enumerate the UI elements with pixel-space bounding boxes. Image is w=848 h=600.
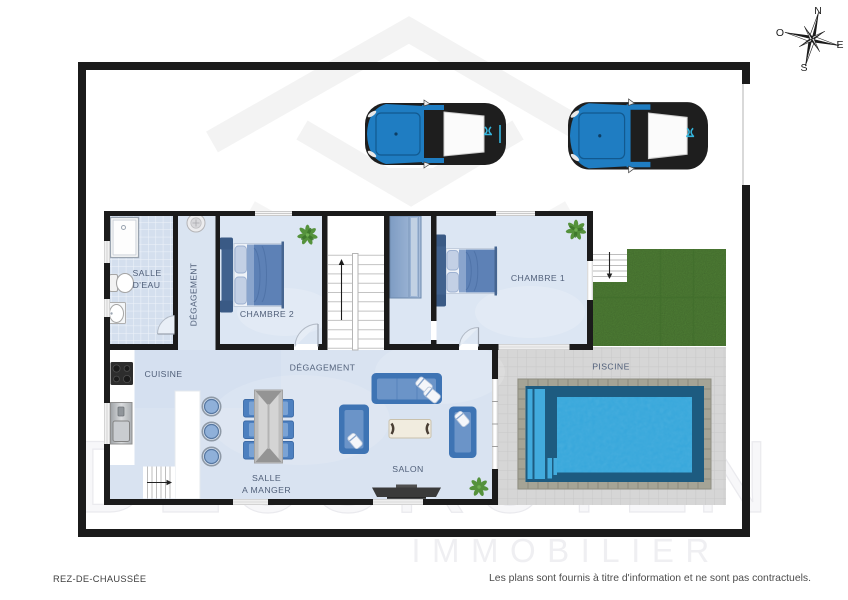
svg-text:D'EAU: D'EAU: [133, 280, 161, 290]
svg-text:A MANGER: A MANGER: [242, 485, 291, 495]
svg-text:PISCINE: PISCINE: [592, 362, 630, 372]
svg-text:DÉGAGEMENT: DÉGAGEMENT: [290, 363, 356, 373]
svg-text:Les plans sont fournis à titre: Les plans sont fournis à titre d'informa…: [489, 573, 811, 584]
svg-text:S: S: [800, 62, 807, 74]
svg-text:CUISINE: CUISINE: [144, 369, 182, 379]
svg-text:SALON: SALON: [392, 464, 423, 474]
svg-text:CHAMBRE 1: CHAMBRE 1: [511, 273, 565, 283]
svg-text:O: O: [776, 27, 784, 39]
svg-text:DÉGAGEMENT: DÉGAGEMENT: [189, 263, 199, 327]
svg-text:E: E: [836, 39, 843, 51]
svg-text:SALLE: SALLE: [252, 473, 281, 483]
svg-text:N: N: [814, 5, 822, 17]
svg-text:CHAMBRE 2: CHAMBRE 2: [240, 309, 294, 319]
svg-text:SALLE: SALLE: [132, 268, 161, 278]
svg-text:REZ-DE-CHAUSSÉE: REZ-DE-CHAUSSÉE: [53, 574, 146, 584]
svg-text:IMMOBILIER: IMMOBILIER: [411, 532, 720, 569]
